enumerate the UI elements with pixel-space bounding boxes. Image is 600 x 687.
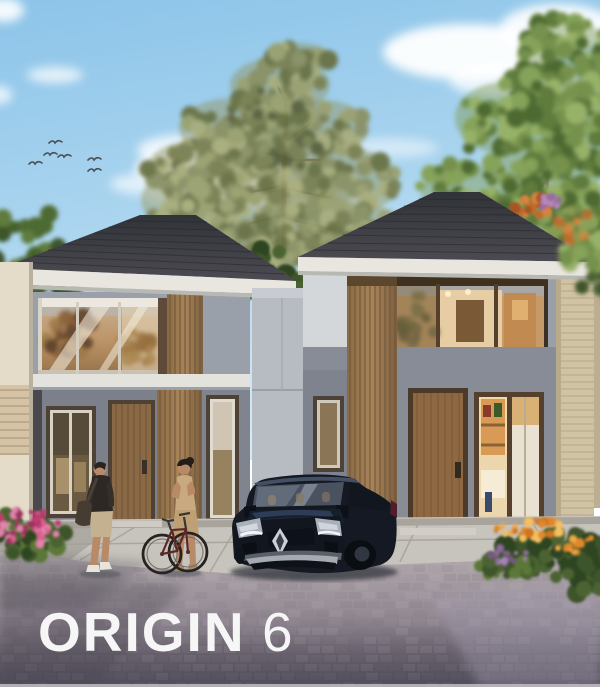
svg-text:ORIGIN: ORIGIN (38, 601, 246, 663)
svg-text:6: 6 (262, 601, 293, 663)
